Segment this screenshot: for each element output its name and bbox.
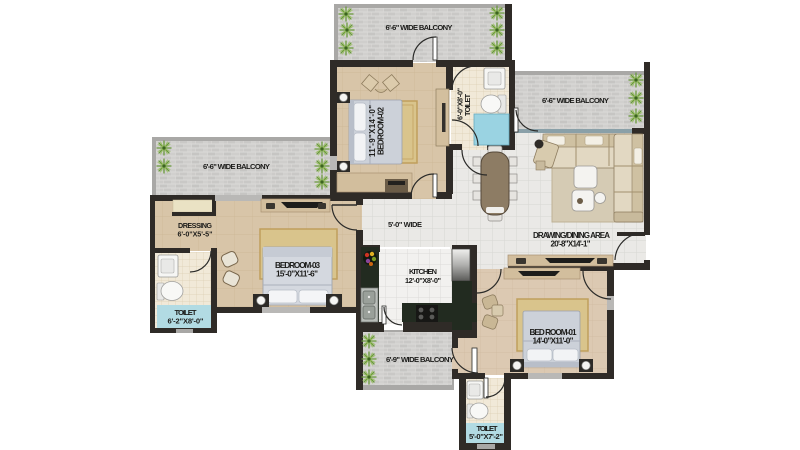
svg-text:6'-9" WIDE BALCONY: 6'-9" WIDE BALCONY xyxy=(386,355,454,364)
svg-text:6'-0"X8'-0": 6'-0"X8'-0" xyxy=(456,88,465,120)
svg-text:KITCHEN: KITCHEN xyxy=(409,267,437,276)
svg-text:5'-0" WIDE: 5'-0" WIDE xyxy=(388,220,422,229)
svg-text:20'-8"X14'-1": 20'-8"X14'-1" xyxy=(551,240,591,249)
svg-text:15'-0"X11'-6": 15'-0"X11'-6" xyxy=(276,270,318,279)
svg-text:12'-0"X8'-0": 12'-0"X8'-0" xyxy=(405,276,441,285)
svg-text:6'-6" WIDE BALCONY: 6'-6" WIDE BALCONY xyxy=(542,96,609,105)
svg-text:14'-0"X11'-0": 14'-0"X11'-0" xyxy=(533,337,574,346)
svg-text:6'-0"X5'-5": 6'-0"X5'-5" xyxy=(178,230,213,239)
svg-text:11'-9"X14'-0": 11'-9"X14'-0" xyxy=(368,105,377,157)
svg-text:6'-6" WIDE BALCONY: 6'-6" WIDE BALCONY xyxy=(203,162,270,171)
svg-text:BEDROOM-02: BEDROOM-02 xyxy=(377,106,386,155)
svg-text:6'-2"X8'-0": 6'-2"X8'-0" xyxy=(168,317,204,326)
svg-text:5'-0"X7'-2": 5'-0"X7'-2" xyxy=(469,432,503,441)
svg-text:6'-6" WIDE BALCONY: 6'-6" WIDE BALCONY xyxy=(386,23,453,32)
